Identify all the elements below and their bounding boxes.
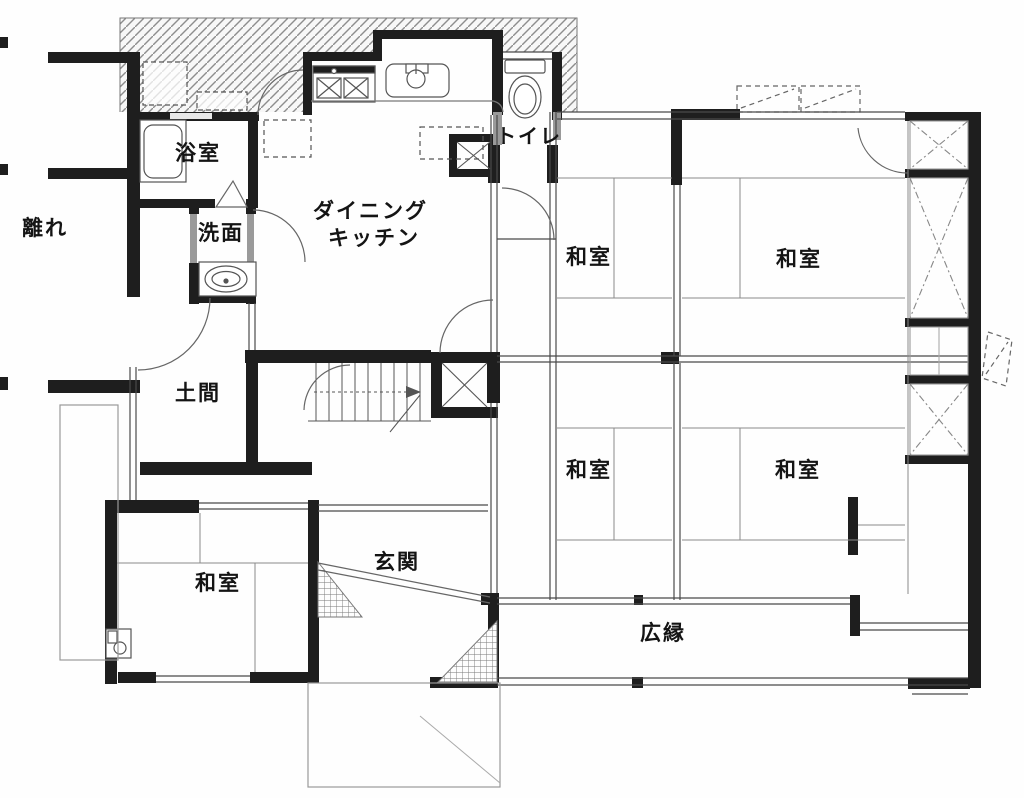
label-doma: 土間 <box>175 377 221 407</box>
label-washitsu-upper-right: 和室 <box>776 243 822 273</box>
entrance-porch <box>308 683 500 787</box>
label-washitsu-bottom-left: 和室 <box>195 567 241 597</box>
storage-x-boxes <box>442 142 490 407</box>
bathroom-door-symbol <box>216 181 247 207</box>
corridor-lower-door-arc <box>440 300 493 353</box>
genkan-details <box>308 562 500 787</box>
stairs <box>308 352 431 432</box>
floor-plan: 離れ 浴室 洗面 ダイニング キッチン トイレ 土間 玄関 広縁 和室 和室 和… <box>0 0 1024 798</box>
stair-hall-door-arc <box>304 365 350 410</box>
label-dining-kitchen-line2: キッチン <box>328 222 420 252</box>
label-dining-kitchen-line1: ダイニング <box>313 195 428 225</box>
stove-icon <box>313 66 375 102</box>
label-washroom: 洗面 <box>198 217 244 247</box>
corridor-upper-door-arc <box>502 188 554 240</box>
label-hiroen: 広縁 <box>640 617 686 647</box>
label-bathroom: 浴室 <box>175 137 221 167</box>
label-genkan: 玄関 <box>374 546 420 576</box>
label-toilet: トイレ <box>496 120 562 149</box>
label-washitsu-upper-left: 和室 <box>566 241 612 271</box>
label-washitsu-lower-left: 和室 <box>566 454 612 484</box>
label-washitsu-lower-right: 和室 <box>775 454 821 484</box>
label-hanare: 離れ <box>22 212 68 242</box>
toilet-icon <box>505 60 545 118</box>
closet-door-arc <box>858 128 908 173</box>
washbasin-icon <box>199 262 256 296</box>
washroom-door-arc <box>253 210 305 262</box>
doma-door-arc <box>138 298 210 370</box>
